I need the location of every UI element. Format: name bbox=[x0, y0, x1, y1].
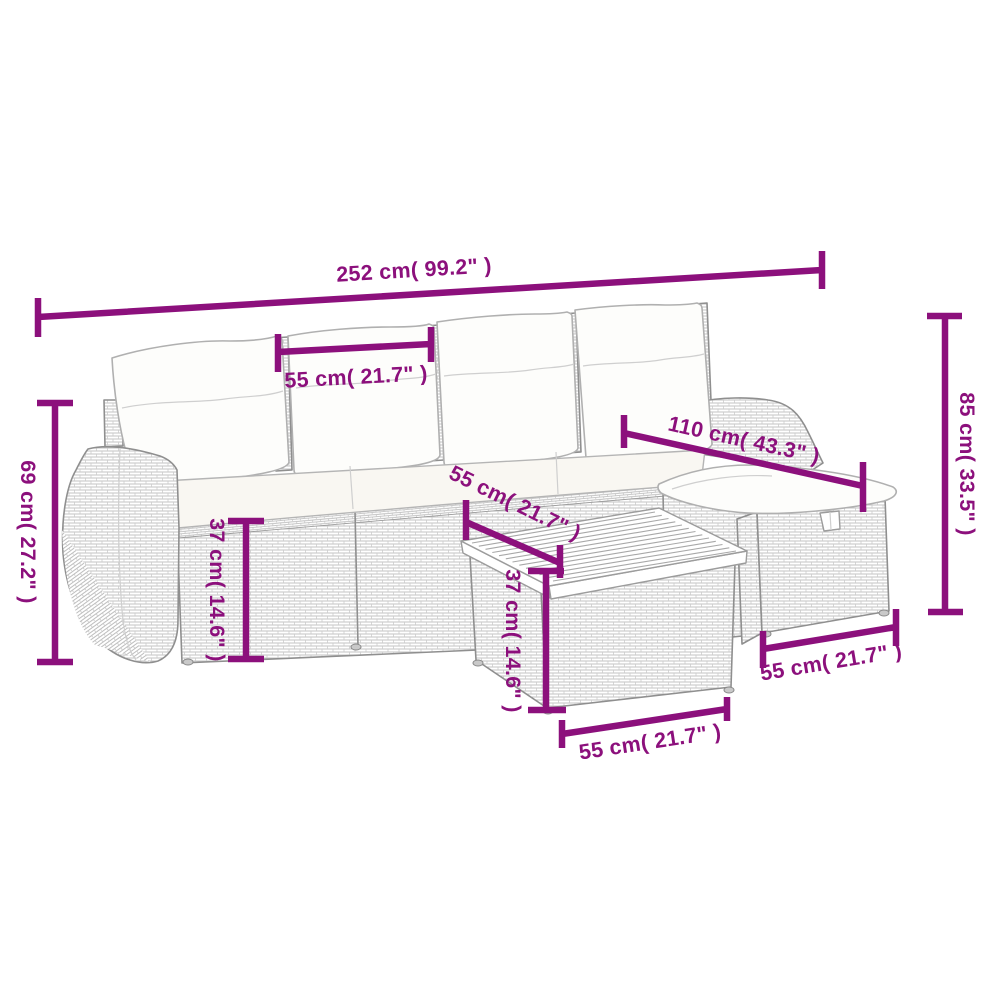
product-dimension-diagram: 252 cm( 99.2" ) 55 cm( 21.7" ) 69 cm( 27… bbox=[0, 0, 1000, 1000]
dimension-label: 37 cm( 14.6" ) bbox=[501, 569, 525, 712]
table-foot bbox=[473, 660, 483, 666]
table-foot bbox=[724, 687, 734, 693]
dimension-label: 252 cm( 99.2" ) bbox=[336, 253, 493, 286]
sofa-set-illustration bbox=[62, 303, 896, 714]
sofa-foot bbox=[183, 659, 193, 665]
back-cushion-3 bbox=[437, 312, 578, 468]
dim-table-width: 55 cm( 21.7" ) bbox=[562, 697, 727, 765]
dimension-label: 69 cm( 27.2" ) bbox=[16, 460, 40, 603]
dimension-label: 85 cm( 33.5" ) bbox=[955, 392, 979, 535]
diagram-canvas: 252 cm( 99.2" ) 55 cm( 21.7" ) 69 cm( 27… bbox=[0, 0, 1000, 1000]
dim-overall-height: 85 cm( 33.5" ) bbox=[927, 316, 979, 612]
dimension-label: 37 cm( 14.6" ) bbox=[205, 518, 229, 661]
sofa-foot bbox=[351, 644, 361, 650]
stool-foot bbox=[879, 610, 889, 616]
